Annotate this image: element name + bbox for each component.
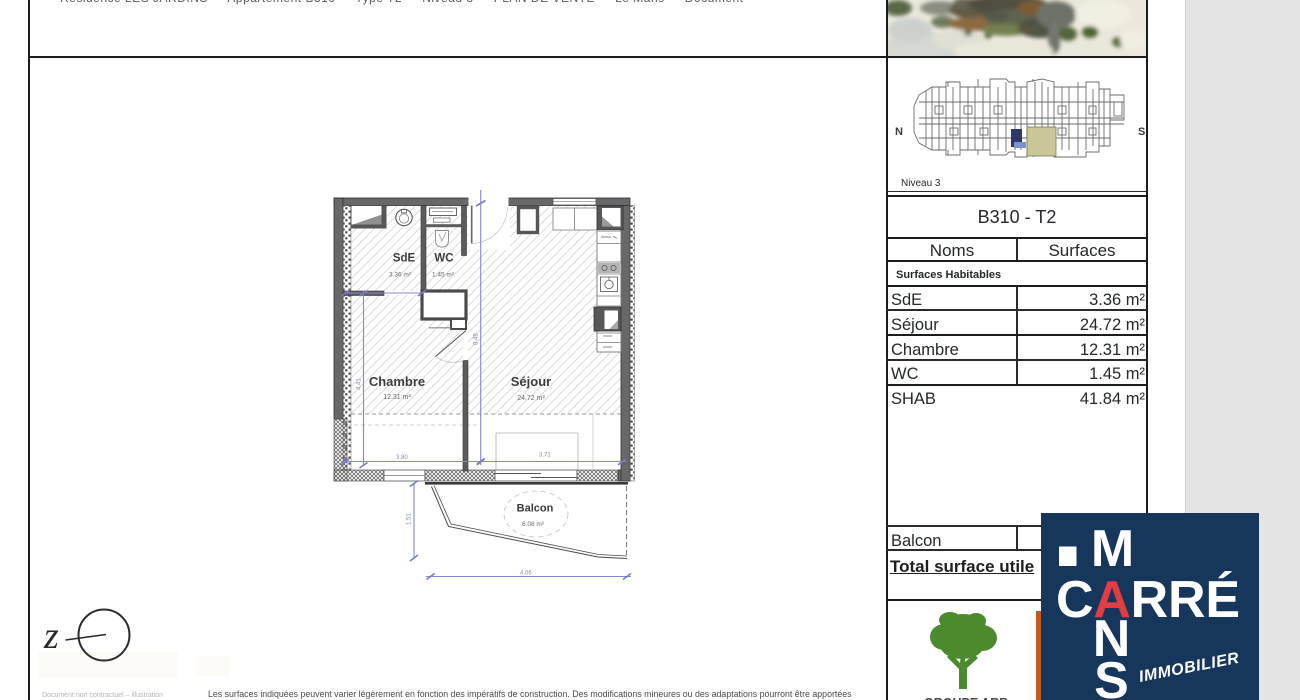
svg-text:M: M (1091, 520, 1134, 578)
svg-text:Niveau 3: Niveau 3 (901, 178, 941, 189)
svg-text:WC: WC (434, 253, 453, 265)
svg-text:Les surfaces indiquées peuvent: Les surfaces indiquées peuvent varier lé… (208, 689, 852, 699)
svg-text:Document non contractuel – ill: Document non contractuel – illustration (42, 692, 163, 699)
svg-text:4.41: 4.41 (357, 378, 363, 390)
svg-text:SdE: SdE (393, 253, 416, 265)
svg-text:N: N (895, 126, 903, 138)
svg-text:3.71: 3.71 (539, 453, 551, 459)
svg-text:R: R (1168, 571, 1206, 629)
svg-text:É: É (1205, 571, 1240, 629)
svg-text:Balcon: Balcon (517, 503, 554, 515)
svg-text:S: S (1094, 652, 1129, 700)
svg-text:R: R (1131, 571, 1169, 629)
svg-text:4.06: 4.06 (520, 571, 532, 577)
svg-text:S: S (1138, 126, 1145, 138)
svg-text:24.72 m²: 24.72 m² (517, 395, 545, 402)
svg-text:3.80: 3.80 (396, 455, 408, 461)
svg-text:C: C (1056, 571, 1094, 629)
svg-text:3.36 m²: 3.36 m² (389, 272, 412, 279)
svg-text:1.51: 1.51 (407, 513, 413, 525)
svg-text:Chambre: Chambre (369, 374, 425, 389)
svg-text:GROUPE ARB: GROUPE ARB (924, 696, 1008, 700)
svg-text:1.45 m²: 1.45 m² (432, 272, 455, 279)
svg-text:z: z (43, 615, 59, 657)
svg-text:8.48: 8.48 (474, 333, 480, 345)
svg-text:6.08 m²: 6.08 m² (522, 521, 545, 528)
svg-text:12.31 m²: 12.31 m² (383, 394, 411, 401)
svg-text:Séjour: Séjour (511, 374, 551, 389)
